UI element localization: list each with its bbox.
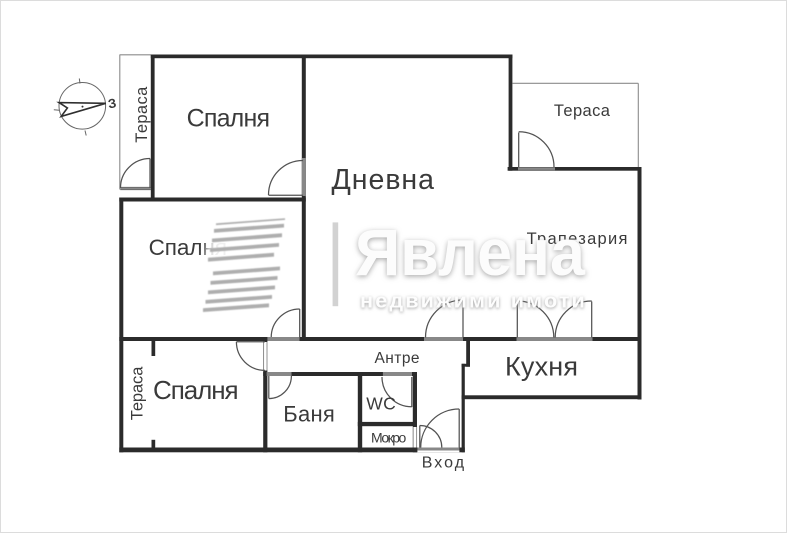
- svg-text:Спалня: Спалня: [153, 375, 239, 405]
- svg-text:WC: WC: [366, 393, 396, 413]
- svg-text:Тераса: Тераса: [129, 366, 147, 420]
- svg-text:Дневна: Дневна: [332, 164, 435, 196]
- svg-text:Тераса: Тераса: [554, 102, 611, 120]
- svg-text:Вход: Вход: [422, 454, 465, 471]
- svg-text:Тераса: Тераса: [133, 86, 151, 143]
- svg-text:Антре: Антре: [375, 350, 420, 367]
- svg-text:Мокро: Мокро: [371, 430, 407, 446]
- svg-text:Баня: Баня: [283, 402, 335, 427]
- svg-text:Спалня: Спалня: [187, 105, 270, 133]
- svg-text:Явлена: Явлена: [355, 215, 586, 289]
- svg-text:недвижими имоти: недвижими имоти: [360, 290, 587, 313]
- svg-text:Кухня: Кухня: [505, 352, 578, 382]
